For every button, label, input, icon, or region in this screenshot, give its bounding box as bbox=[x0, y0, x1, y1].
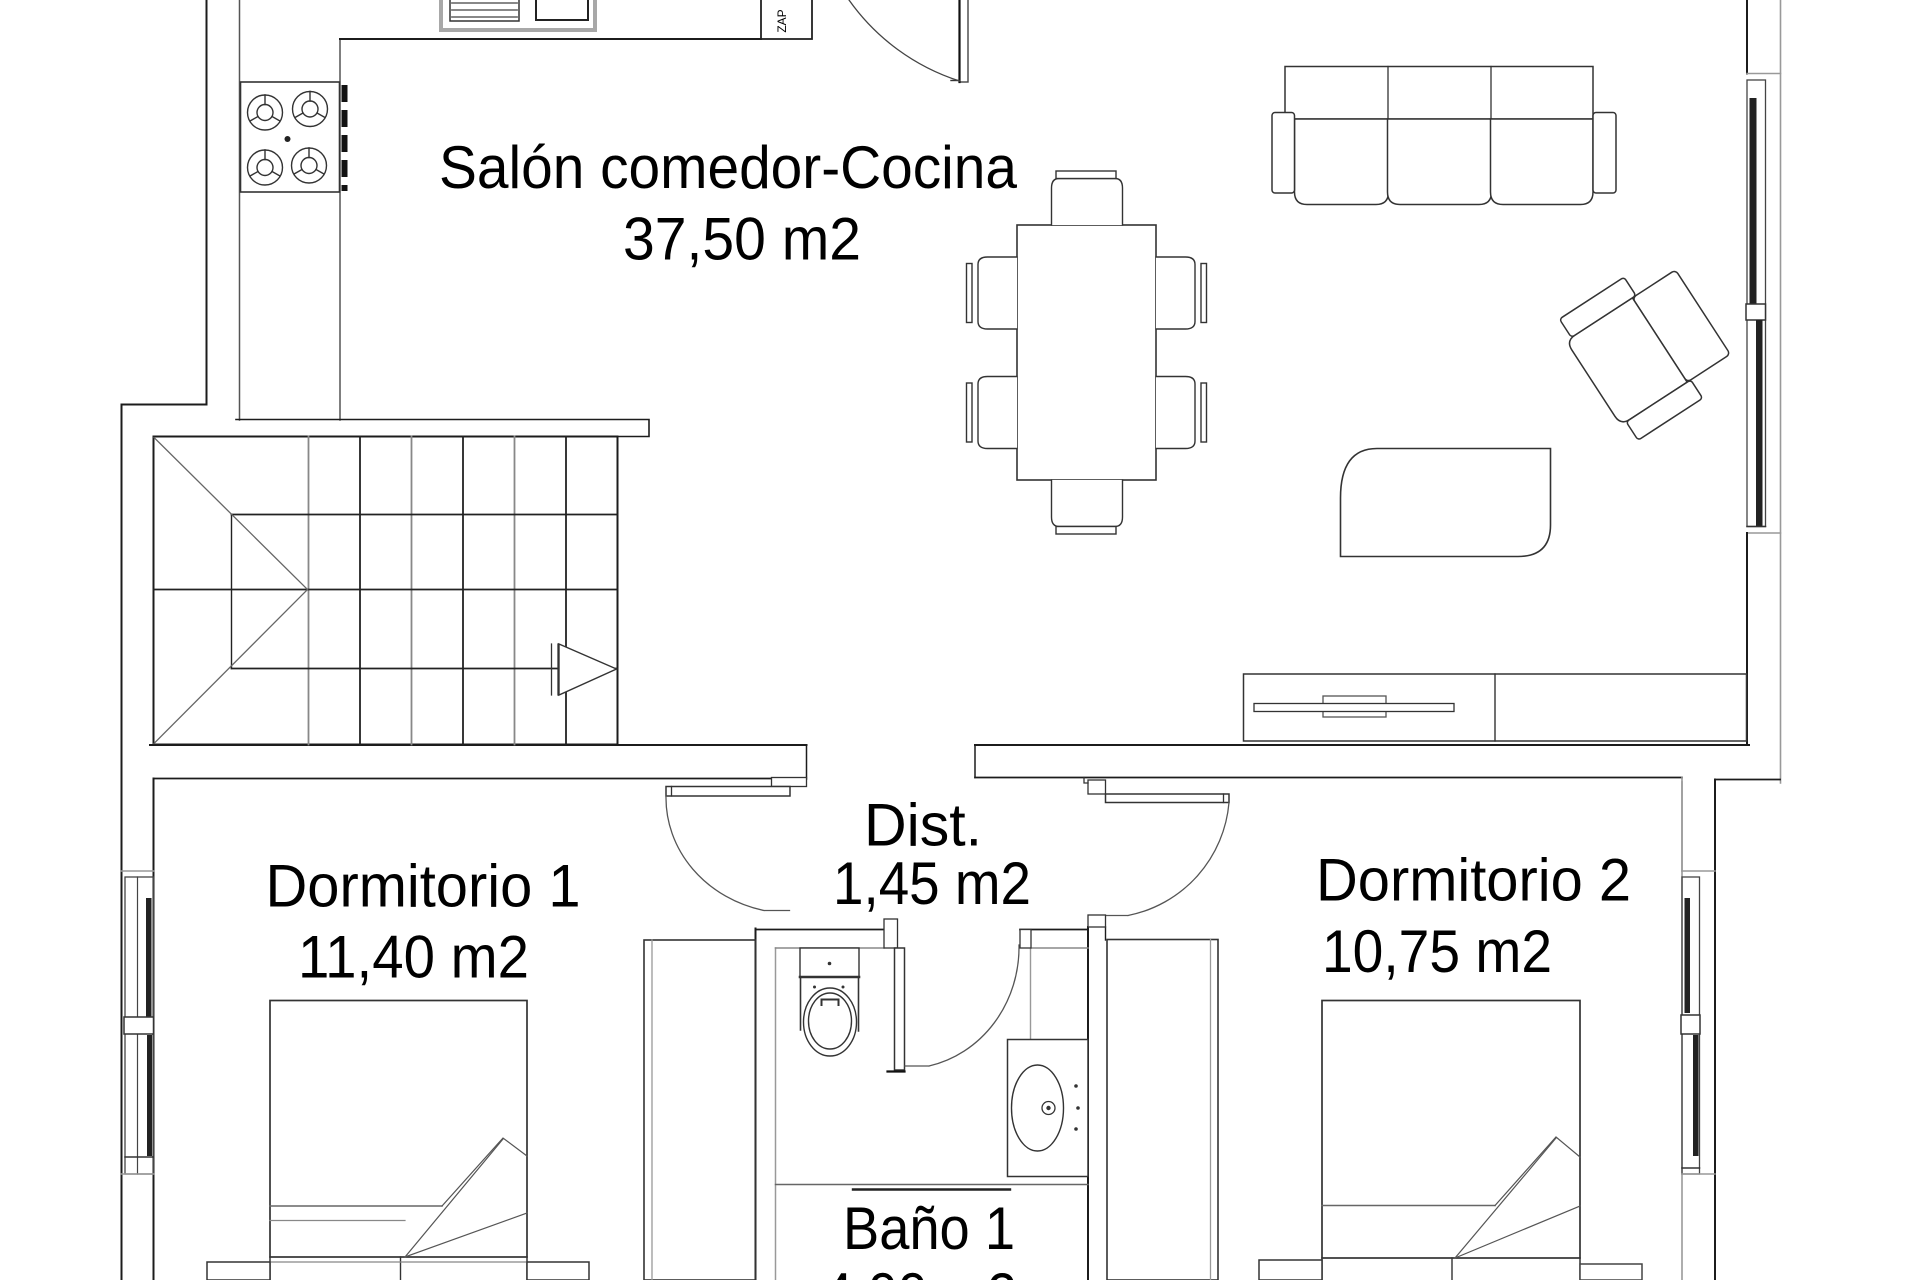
svg-text:ZAP: ZAP bbox=[775, 9, 789, 32]
svg-text:11,40 m2: 11,40 m2 bbox=[298, 924, 529, 991]
svg-text:4,00 m2: 4,00 m2 bbox=[823, 1261, 1017, 1280]
svg-text:Dist.: Dist. bbox=[864, 792, 982, 859]
svg-text:Dormitorio 1: Dormitorio 1 bbox=[266, 853, 581, 920]
svg-text:37,50 m2: 37,50 m2 bbox=[623, 206, 861, 273]
svg-text:1,45 m2: 1,45 m2 bbox=[833, 850, 1031, 917]
svg-text:Salón comedor-Cocina: Salón comedor-Cocina bbox=[439, 134, 1018, 201]
svg-text:Baño 1: Baño 1 bbox=[843, 1195, 1015, 1262]
svg-text:Dormitorio 2: Dormitorio 2 bbox=[1316, 847, 1631, 914]
svg-text:10,75 m2: 10,75 m2 bbox=[1322, 918, 1552, 985]
